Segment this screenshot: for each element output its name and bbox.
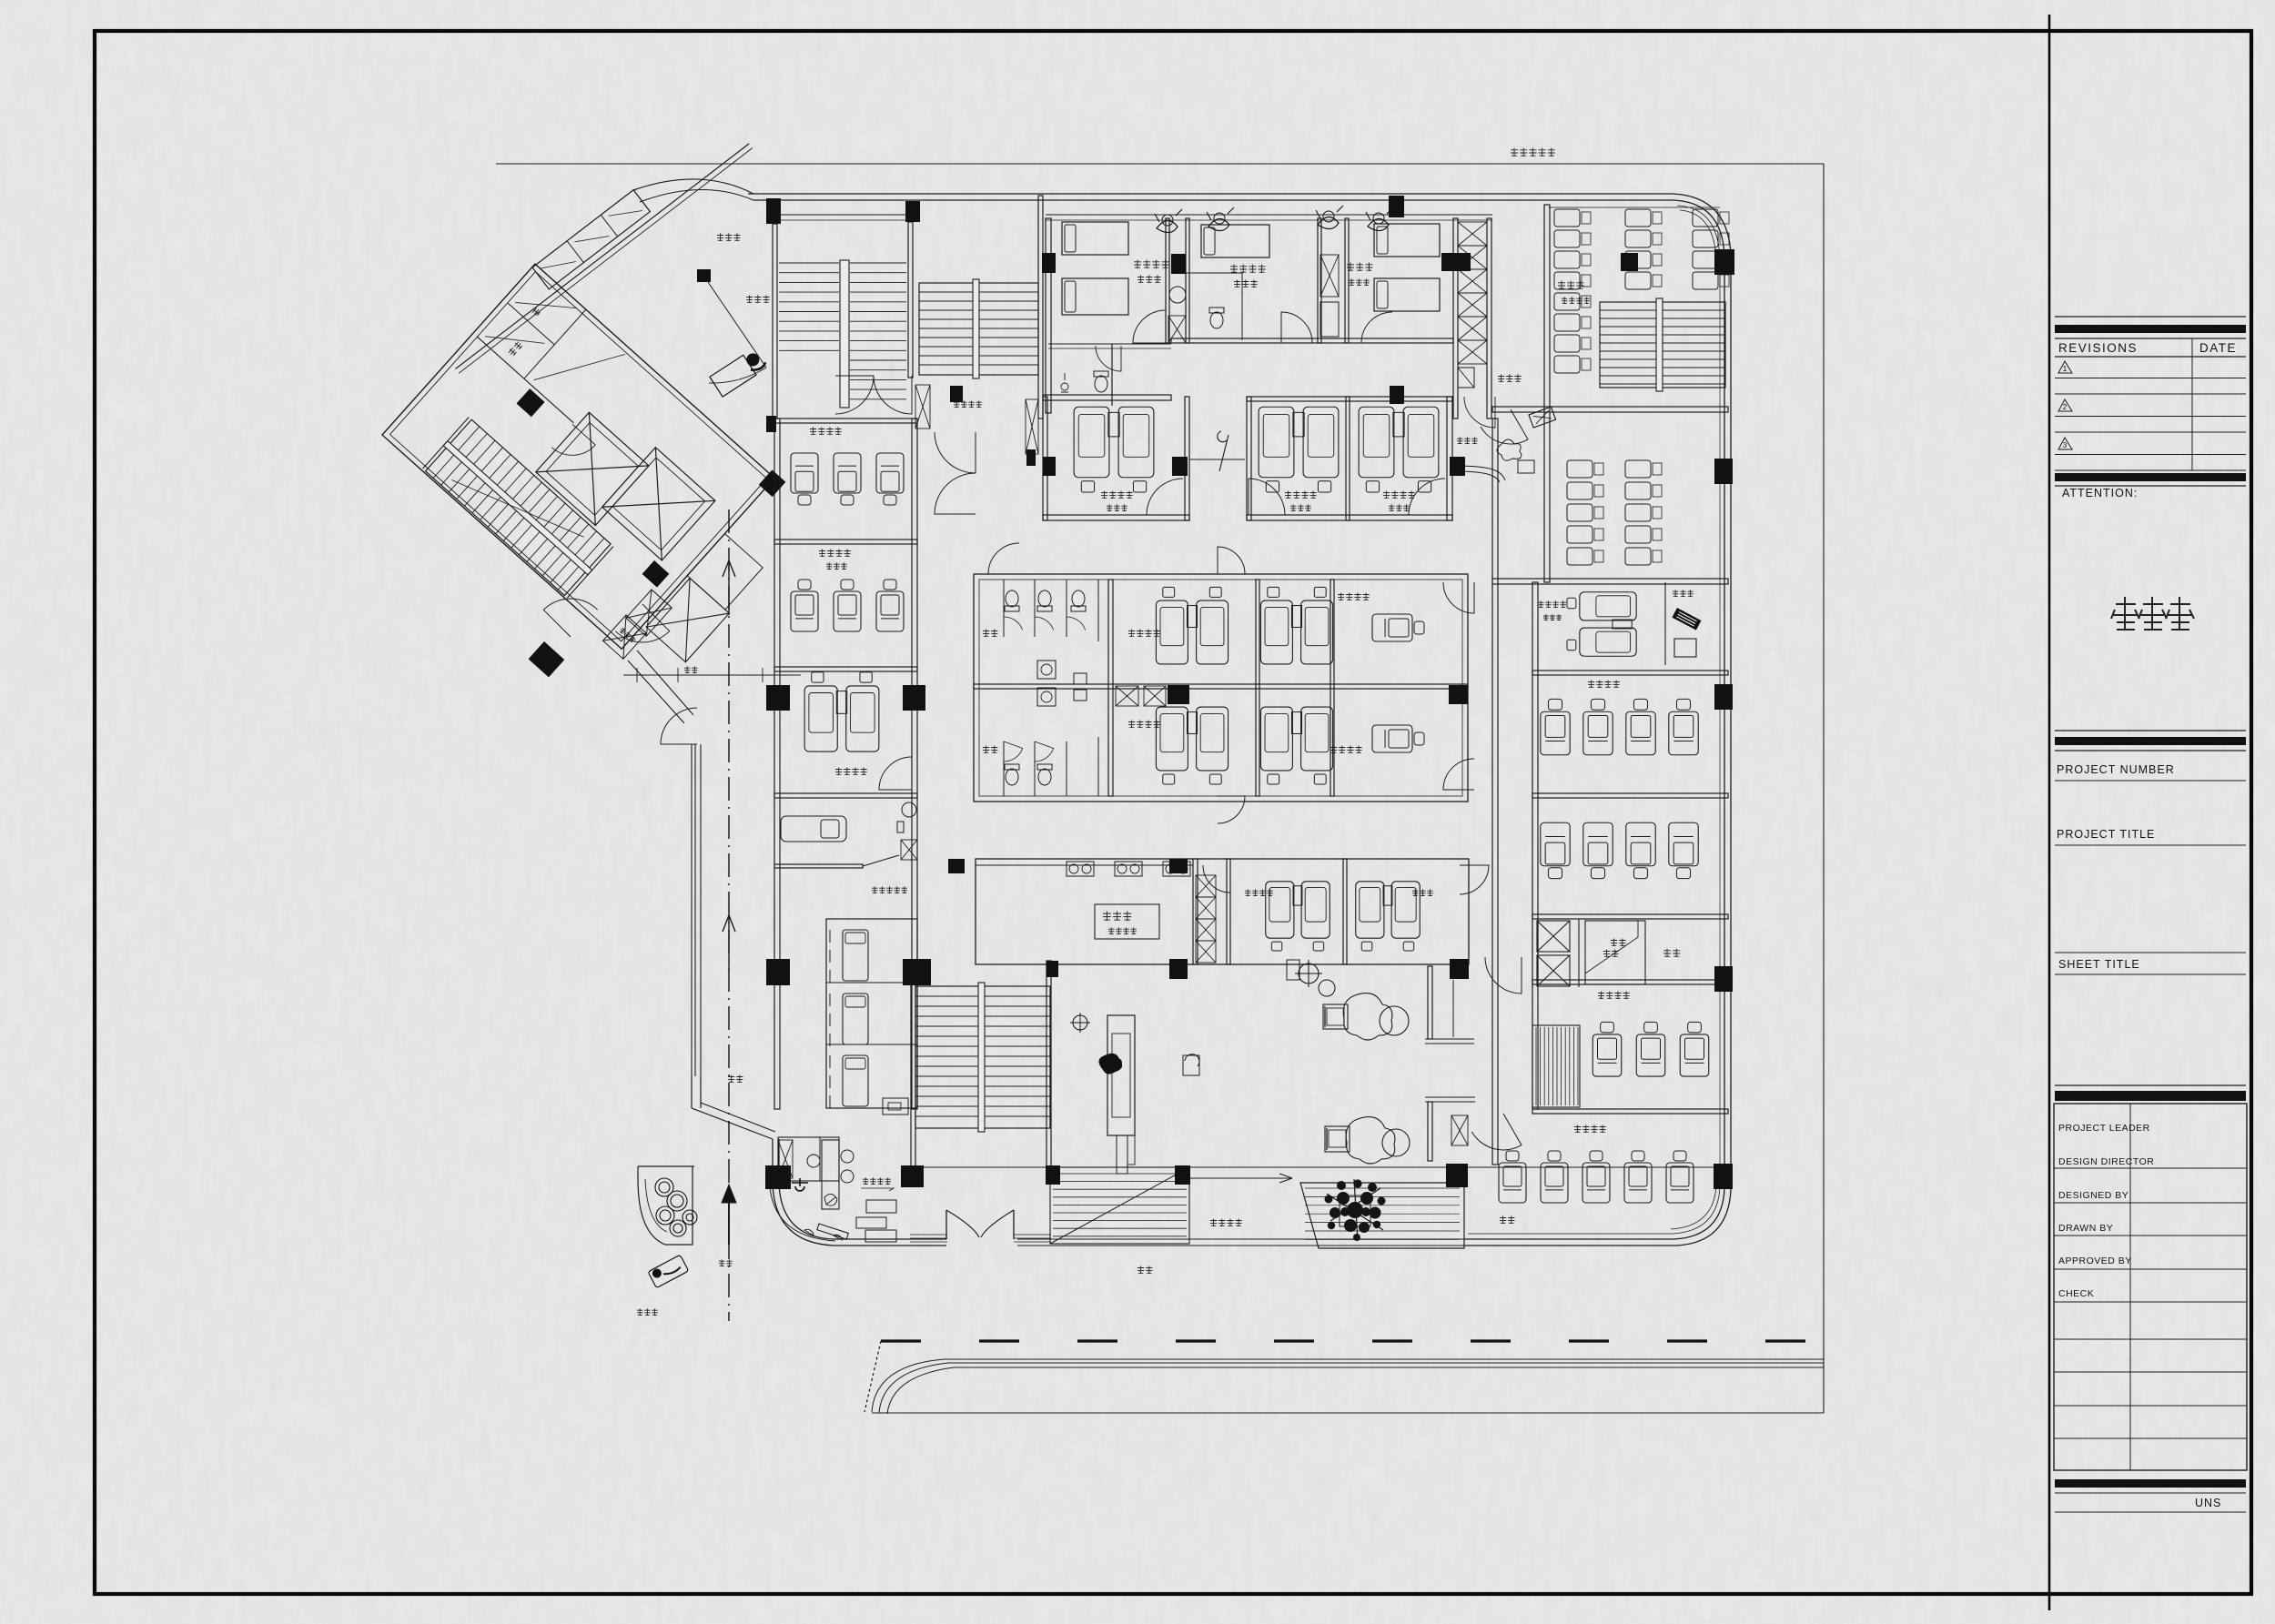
svg-text:1: 1 <box>2063 364 2068 373</box>
svg-text:DATE: DATE <box>2199 341 2237 355</box>
svg-text:DESIGN DIRECTOR: DESIGN DIRECTOR <box>2058 1156 2154 1167</box>
svg-text:REVISIONS: REVISIONS <box>2058 341 2138 355</box>
svg-text:PROJECT NUMBER: PROJECT NUMBER <box>2057 763 2175 776</box>
svg-text:PROJECT LEADER: PROJECT LEADER <box>2058 1123 2150 1134</box>
svg-text:DESIGNED BY: DESIGNED BY <box>2058 1190 2128 1201</box>
svg-text:PROJECT TITLE: PROJECT TITLE <box>2057 828 2155 841</box>
svg-text:DRAWN BY: DRAWN BY <box>2058 1223 2113 1234</box>
svg-text:UNS: UNS <box>2195 1497 2221 1509</box>
svg-text:2: 2 <box>2063 402 2068 411</box>
svg-text:CHECK: CHECK <box>2058 1288 2094 1299</box>
svg-text:ATTENTION:: ATTENTION: <box>2062 487 2138 499</box>
svg-text:SHEET TITLE: SHEET TITLE <box>2058 958 2140 971</box>
svg-text:3: 3 <box>2063 440 2068 449</box>
svg-text:APPROVED BY: APPROVED BY <box>2058 1256 2132 1266</box>
